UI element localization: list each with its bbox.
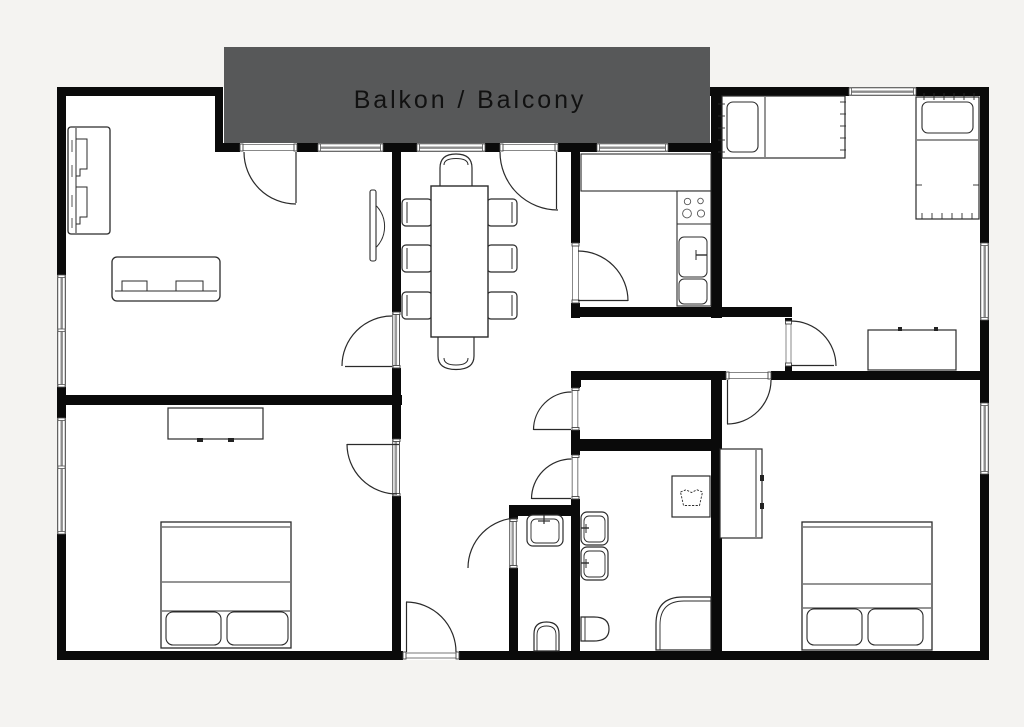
svg-text:Balkon / Balcony: Balkon / Balcony [354, 86, 587, 114]
